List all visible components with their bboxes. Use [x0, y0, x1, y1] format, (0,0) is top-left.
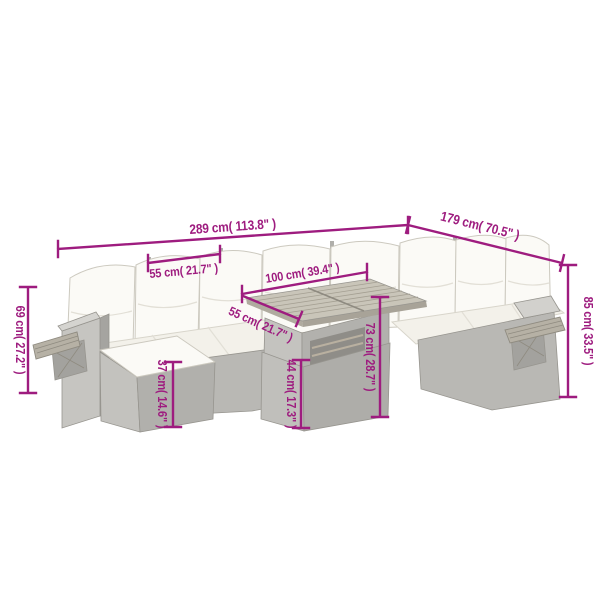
- dim-table-height-label: 73 cm( 28.7" ): [363, 323, 377, 392]
- dim-back-height: 85 cm( 33.5" ): [560, 265, 595, 397]
- dim-table-base-height-label: 44 cm( 17.3" ): [284, 360, 298, 429]
- sofa-dimension-diagram: 289 cm( 113.8" ) 179 cm( 70.5" ) 55 cm( …: [0, 0, 600, 600]
- back-cushion: [399, 237, 456, 326]
- dim-armrest-height: 69 cm( 27.2" ): [13, 287, 36, 393]
- cube-table: [246, 279, 427, 431]
- dim-armrest-height-label: 69 cm( 27.2" ): [13, 306, 27, 375]
- dim-back-height-label: 85 cm( 33.5" ): [581, 297, 595, 366]
- dim-ottoman-height-label: 37 cm( 14.6" ): [155, 360, 169, 429]
- product-dimension-image: 289 cm( 113.8" ) 179 cm( 70.5" ) 55 cm( …: [0, 0, 600, 600]
- sofa-set-illustration: [33, 235, 565, 432]
- left-armrest-tray: [33, 332, 87, 380]
